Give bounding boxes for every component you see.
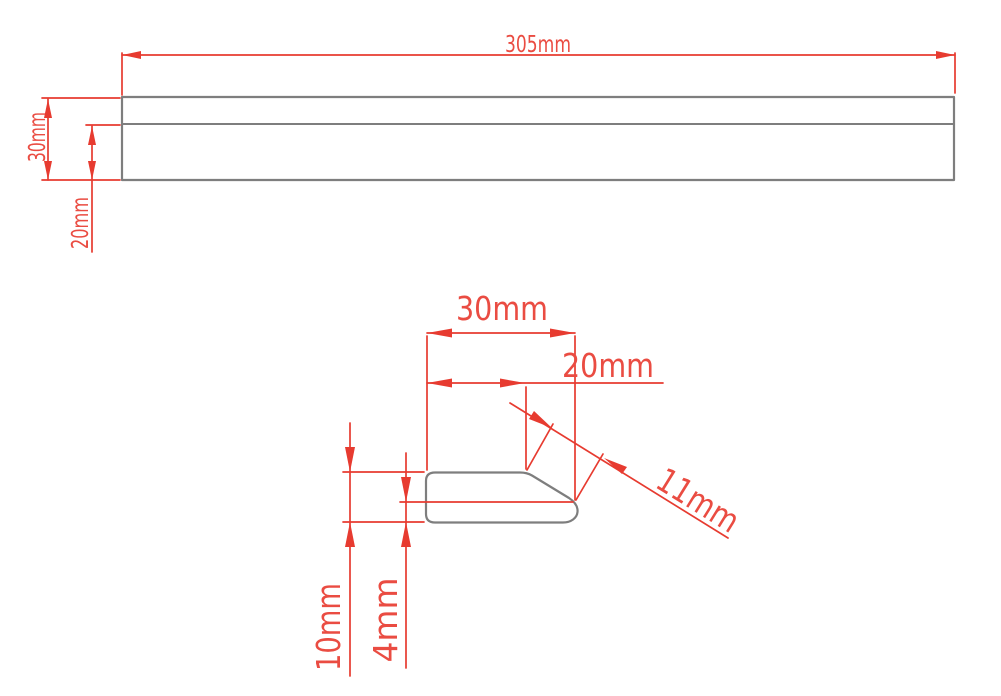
dimension-side-lower-height: 20mm — [68, 125, 120, 252]
dim-label-side-length: 305mm — [505, 32, 571, 58]
arrow-up-icon — [88, 126, 96, 145]
arrow-right-icon — [500, 379, 525, 388]
extension-line — [527, 424, 553, 470]
arrow-left-icon — [427, 329, 452, 338]
arrow-down-icon — [345, 447, 355, 472]
blade-profile-outline — [426, 473, 578, 523]
dimension-profile-width: 30mm — [427, 289, 575, 500]
arrow-left-icon — [122, 51, 141, 59]
dimension-side-height: 30mm — [25, 98, 120, 180]
arrow-lower-icon — [604, 458, 627, 474]
side-view: 305mm 30mm 20mm — [25, 32, 955, 252]
bar-outline — [122, 97, 954, 180]
dim-label-profile-thickness: 10mm — [309, 583, 348, 671]
arrow-up-icon — [401, 522, 411, 547]
arrow-down-icon — [44, 161, 52, 180]
technical-drawing: 305mm 30mm 20mm 30mm — [0, 0, 1001, 696]
dim-label-profile-bevel: 11mm — [650, 460, 747, 541]
arrow-upper-icon — [529, 411, 552, 428]
dimension-profile-flat-width: 20mm — [427, 346, 663, 469]
arrow-down-icon — [401, 477, 411, 502]
dim-label-side-height: 30mm — [25, 112, 51, 162]
arrow-right-icon — [936, 51, 955, 59]
arrow-left-icon — [427, 379, 452, 388]
arrow-down-icon — [88, 161, 96, 180]
arrow-right-icon — [550, 329, 575, 338]
profile-view: 30mm 20mm 11mm 10mm — [309, 289, 747, 676]
dim-label-profile-tip-thickness: 4mm — [366, 578, 405, 663]
dim-label-profile-width: 30mm — [456, 289, 548, 328]
technical-drawing-canvas: 305mm 30mm 20mm 30mm — [0, 0, 1001, 696]
dim-label-profile-flat-width: 20mm — [562, 346, 654, 385]
dimension-side-length: 305mm — [122, 32, 955, 95]
dim-label-side-lower-height: 20mm — [68, 197, 94, 249]
arrow-up-icon — [345, 522, 355, 547]
extension-line — [576, 454, 603, 500]
